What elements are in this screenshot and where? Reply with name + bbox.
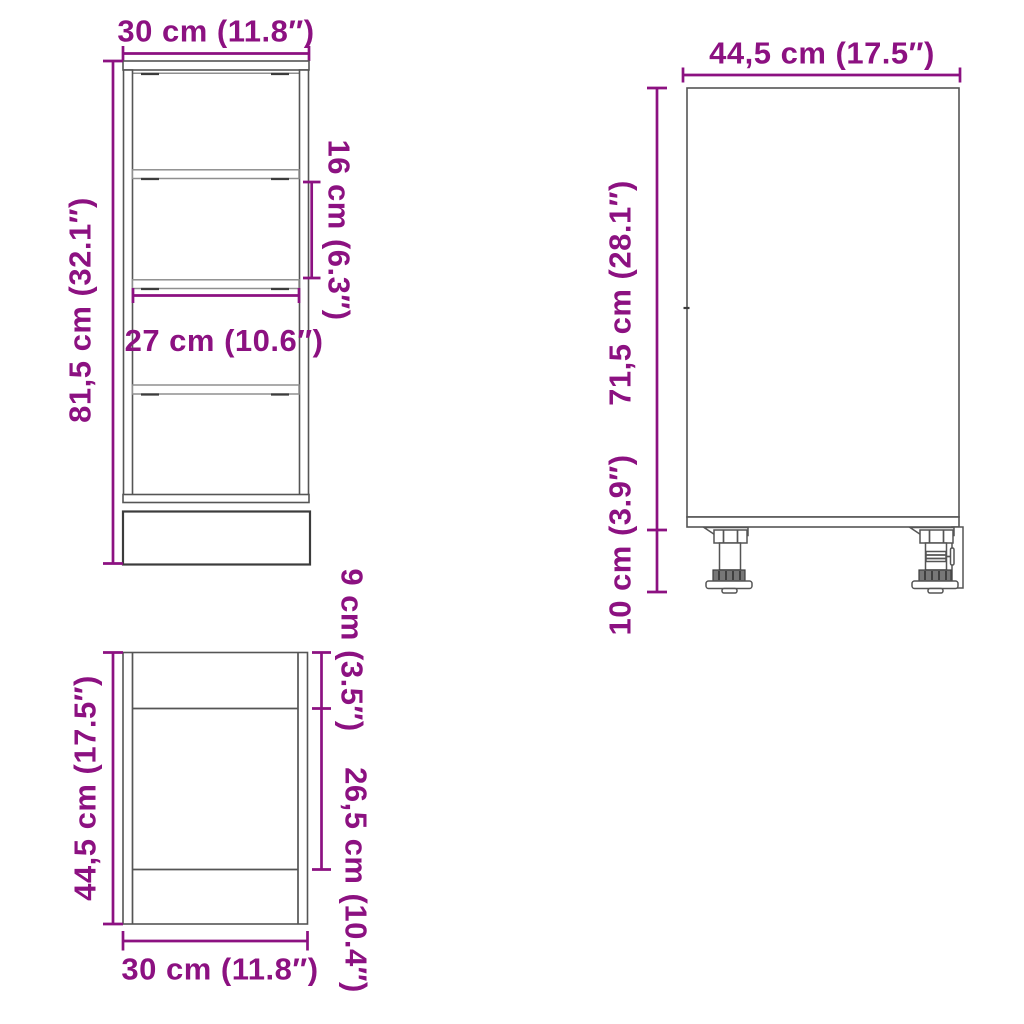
clip-pin-head (951, 548, 955, 565)
panel-clip (926, 552, 946, 562)
inner-depth-dimension: 26,5 cm (10.4″) (312, 709, 374, 993)
side-depth-label: 44,5 cm (17.5″) (709, 36, 935, 71)
front-view: 30 cm (11.8″) (63, 14, 357, 565)
diagram-canvas: 30 cm (11.8″) (0, 0, 1024, 1024)
adjustable-foot-left (704, 528, 752, 594)
foot-base-stem (722, 589, 737, 594)
inner-depth-label: 26,5 cm (10.4″) (339, 767, 374, 993)
side-height-label: 71,5 cm (28.1″) (603, 180, 638, 406)
plinth (123, 512, 310, 565)
shelf (133, 170, 300, 179)
foot-base (912, 581, 958, 589)
foot-base-stem (928, 589, 943, 594)
shelf (133, 280, 300, 289)
foot-collar (920, 530, 953, 543)
right-side-panel (300, 70, 309, 495)
leg-height-label: 10 cm (3.9″) (603, 454, 638, 635)
top-board (123, 61, 309, 70)
foot-shaft (720, 543, 741, 570)
top-width-label: 30 cm (11.8″) (121, 952, 318, 987)
left-side-panel (124, 70, 133, 495)
adjustable-foot-right (910, 528, 958, 594)
shelf-gap-dimension: 16 cm (6.3″) (303, 139, 357, 320)
bottom-board (123, 495, 309, 503)
inner-width-dimension: 27 cm (10.6″) (125, 288, 324, 358)
front-edge-label: 9 cm (3.5″) (335, 568, 370, 731)
dimension-diagram: 30 cm (11.8″) (0, 0, 1024, 1024)
top-view: 44,5 cm (17.5″) 9 cm (3.5″) 26,5 cm (10.… (68, 568, 374, 993)
cabinet-front-outline (123, 61, 310, 565)
front-edge-dimension: 9 cm (3.5″) (312, 568, 370, 731)
inner-width-label: 27 cm (10.6″) (125, 323, 324, 358)
shelf (133, 385, 300, 394)
front-width-label: 30 cm (11.8″) (117, 14, 314, 49)
front-width-dimension: 30 cm (11.8″) (117, 14, 314, 62)
cabinet-side-outline (684, 88, 964, 588)
top-depth-label: 44,5 cm (17.5″) (68, 675, 103, 901)
top-depth-dimension: 44,5 cm (17.5″) (68, 653, 124, 925)
top-view-outline (123, 653, 308, 925)
side-depth-dimension: 44,5 cm (17.5″) (683, 36, 960, 83)
side-view: 44,5 cm (17.5″) (603, 36, 964, 636)
top-width-dimension: 30 cm (11.8″) (121, 931, 318, 987)
side-panel (687, 88, 959, 517)
bottom-board-side (687, 517, 959, 527)
front-height-dimension: 81,5 cm (32.1″) (63, 61, 124, 564)
shelf-gap-label: 16 cm (6.3″) (322, 139, 357, 320)
foot-base (706, 581, 752, 589)
front-height-label: 81,5 cm (32.1″) (63, 197, 98, 423)
top-view-body (123, 653, 308, 925)
foot-collar (714, 530, 747, 543)
